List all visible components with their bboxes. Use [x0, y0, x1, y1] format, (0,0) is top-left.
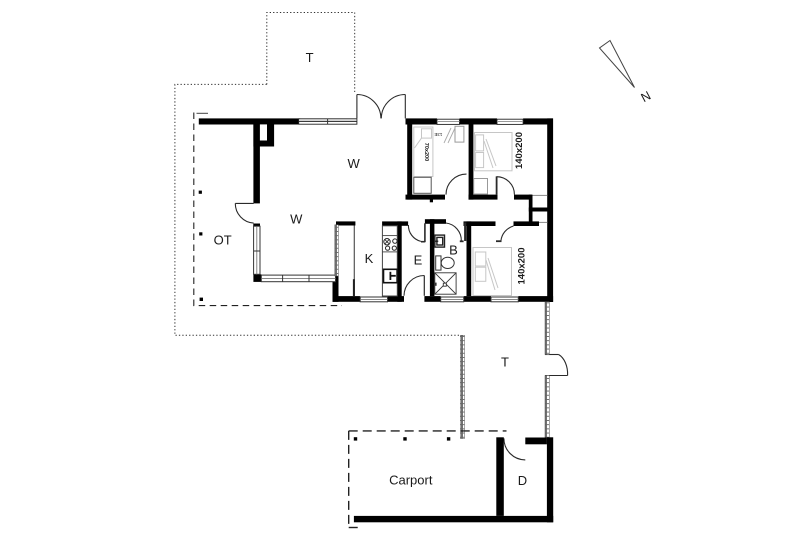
svg-text:70x200: 70x200 — [423, 143, 429, 161]
svg-text:140x200: 140x200 — [514, 132, 525, 169]
svg-text:OT: OT — [214, 232, 232, 247]
svg-text:D: D — [518, 473, 527, 488]
svg-text:W: W — [347, 156, 360, 171]
svg-text:13E: 13E — [434, 132, 442, 137]
svg-text:T: T — [306, 50, 314, 65]
svg-text:E: E — [414, 253, 423, 268]
svg-text:140x200: 140x200 — [517, 248, 528, 285]
svg-text:K: K — [365, 251, 374, 266]
svg-text:Carport: Carport — [389, 472, 433, 487]
svg-text:W: W — [290, 212, 303, 227]
svg-text:T: T — [501, 355, 509, 370]
svg-text:B: B — [449, 243, 458, 258]
